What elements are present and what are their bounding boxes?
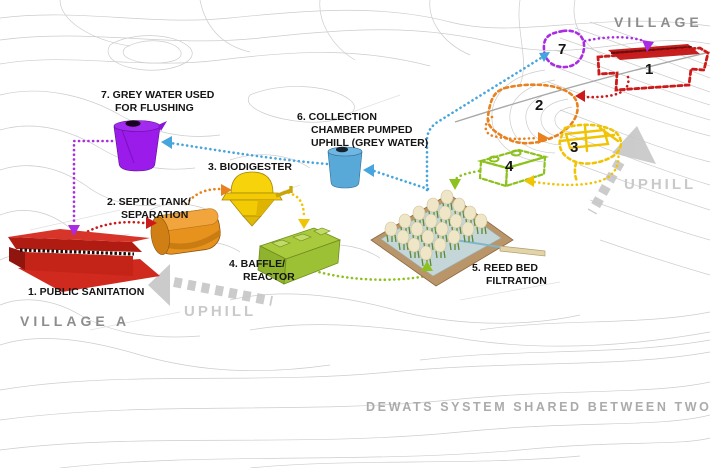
biodigester-tank [222, 172, 292, 226]
label-uphill-right: UPHILL [624, 176, 696, 193]
marker-1-number: 1 [645, 61, 653, 78]
uphill-arrow-right [592, 126, 656, 212]
flow-7b-to-1b [585, 37, 644, 41]
label-biodigester: 3. BIODIGESTER [208, 161, 292, 174]
public-sanitation-building [8, 229, 160, 292]
label-grey-water-flushing: 7. GREY WATER USED FOR FLUSHING [101, 89, 214, 115]
marker-2-number: 2 [535, 97, 543, 114]
label-village-b: VILLAGE B [614, 14, 710, 30]
flow-5-to-6 [374, 171, 428, 189]
flow-6-to-7b-uphill [427, 58, 541, 190]
flow-4-to-5 [315, 268, 427, 280]
label-reed-bed: 5. REED BED FILTRATION [472, 262, 547, 288]
label-septic-tank: 2. SEPTIC TANK/ SEPARATION [107, 196, 191, 222]
dewats-diagram: 7. GREY WATER USED FOR FLUSHING 6. COLLE… [0, 0, 710, 468]
label-public-sanitation: 1. PUBLIC SANITATION [28, 286, 144, 299]
grey-water-tank [114, 120, 167, 171]
marker-4-number: 4 [505, 158, 513, 175]
label-baffle-reactor: 4. BAFFLE/ REACTOR [229, 258, 295, 284]
diagram-art [0, 0, 710, 468]
flow-2b-to-3b [486, 117, 538, 139]
marker-3-structure [560, 125, 621, 181]
label-village-a: VILLAGE A [20, 313, 130, 329]
flow-1b-to-2b [585, 77, 628, 97]
label-uphill-left: UPHILL [184, 303, 256, 320]
marker-2-outline [488, 85, 578, 144]
flow-4b-to-5 [456, 171, 479, 179]
label-collection-chamber: 6. COLLECTION CHAMBER PUMPED UPHILL (GRE… [297, 111, 428, 150]
page-title: DEWATS SYSTEM SHARED BETWEEN TWO VILLAGE… [366, 400, 710, 414]
marker-3-number: 3 [570, 139, 578, 156]
flow-3-to-4 [284, 192, 304, 218]
flow-2-to-3 [186, 189, 220, 204]
collection-chamber [328, 147, 362, 188]
marker-7-number: 7 [558, 41, 566, 58]
